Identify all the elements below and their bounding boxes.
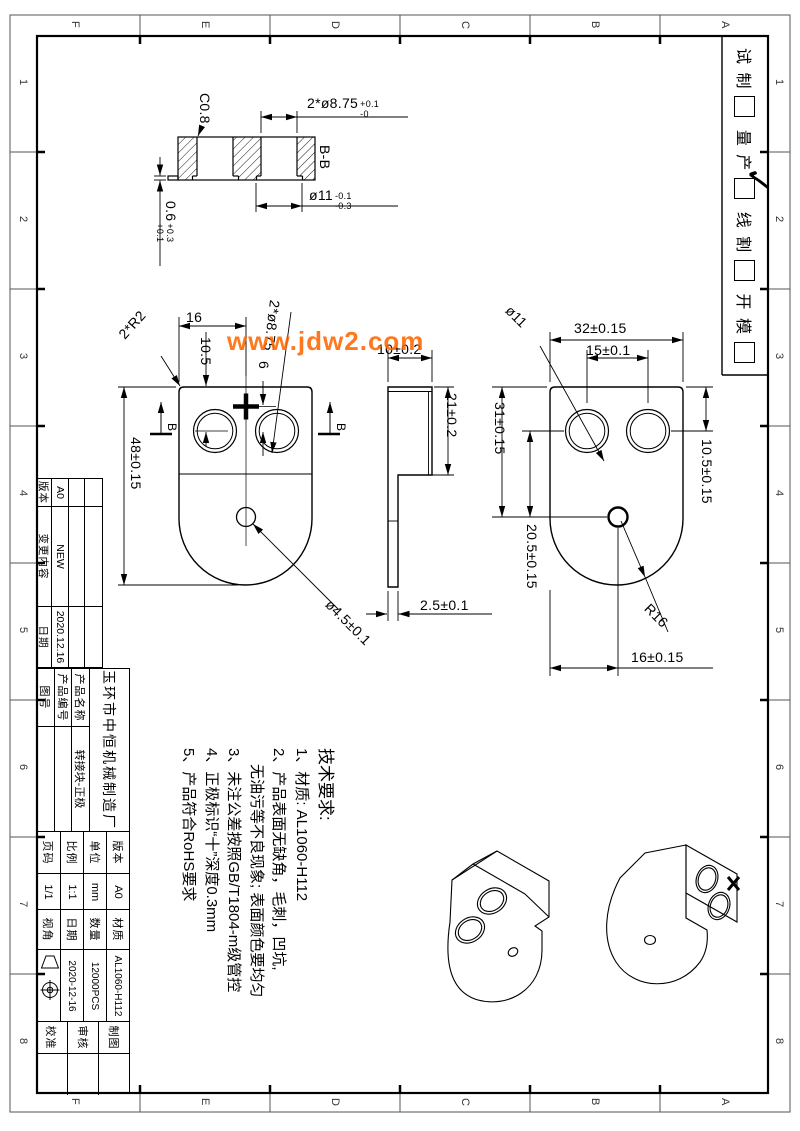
- iso-view-back: [448, 851, 549, 1002]
- zone-letter: F: [69, 1098, 80, 1105]
- dim-hole-pitch: 15±0.1: [586, 343, 631, 357]
- dim-center-offset: 16±0.15: [631, 650, 684, 664]
- page-label: 页码: [36, 832, 60, 874]
- draft-label: 制图: [98, 1022, 129, 1054]
- zone-number: 8: [17, 1038, 28, 1044]
- drawing-sheet: F E D C B A F E D C B A 1 2 3 4 5 6 7 8 …: [0, 0, 800, 1131]
- dim-lip-height: 0.6+0.3+0.1: [155, 201, 178, 242]
- dim-half-width: 16: [186, 310, 202, 324]
- tech-item: 无油污等不良现象; 表面颜色要均匀: [245, 748, 268, 1090]
- zone-number: 7: [773, 901, 784, 907]
- status-trial-label: 试 制: [733, 48, 757, 90]
- status-wire-label: 线 割: [733, 212, 757, 254]
- revision-header-row: 版本 变更内容 日期: [36, 479, 53, 667]
- first-angle-projection-icon: [36, 950, 60, 1022]
- zone-letter: C: [459, 1098, 470, 1106]
- title-block: A0 NEW 2020.12.16 版本 变更内容 日期 玉环市中恒机械制造厂 …: [37, 478, 130, 1093]
- tech-item: 5、产品符合RoHS要求: [177, 748, 200, 1090]
- zone-number: 2: [17, 216, 28, 222]
- front-view: [118, 312, 340, 609]
- dim-edge-to-center: 31±0.15: [493, 402, 507, 455]
- version-label: 版本: [106, 832, 129, 874]
- zone-number: 1: [773, 79, 784, 85]
- zone-number: 6: [17, 764, 28, 770]
- review-label: 审核: [67, 1022, 98, 1054]
- status-mold: 开 模: [733, 294, 757, 363]
- zone-letter: A: [719, 21, 730, 28]
- tech-item: 1、材质: AL1060-H112: [290, 748, 313, 1090]
- tech-title: 技术要求:: [315, 748, 340, 1090]
- zone-number: 3: [773, 353, 784, 359]
- iso-view-front: [607, 845, 739, 984]
- date-value: 2020-12-16: [60, 950, 83, 1022]
- status-mold-label: 开 模: [733, 294, 757, 336]
- revision-date-header: 日期: [36, 607, 52, 667]
- date-label: 日期: [60, 910, 83, 950]
- zone-letter: D: [329, 21, 340, 29]
- qty-value: 12000PCS: [83, 950, 106, 1022]
- zone-number: 1: [17, 79, 28, 85]
- zone-number: 7: [17, 901, 28, 907]
- dim-holes-diameter: 2*ø8.75+0.1-0: [307, 96, 379, 119]
- zone-letter: E: [199, 21, 210, 28]
- status-trial: 试 制: [733, 48, 757, 117]
- side-view: [366, 350, 492, 621]
- review-signature: [67, 1054, 98, 1095]
- technical-requirements: 技术要求: 1、材质: AL1060-H112 2、产品表面无缺角，毛刺，凹坑,…: [168, 748, 340, 1090]
- zone-number: 5: [17, 627, 28, 633]
- trial-checkbox: [735, 96, 756, 117]
- zone-number: 4: [773, 490, 784, 496]
- material-label: 材质: [106, 910, 129, 950]
- zone-letter: F: [69, 21, 80, 28]
- zone-letter: C: [459, 21, 470, 29]
- zone-letter: B: [589, 1098, 600, 1105]
- view-angle-label: 视角: [36, 910, 60, 950]
- mold-checkbox: [735, 342, 756, 363]
- zone-number: 8: [773, 1038, 784, 1044]
- dim-boss-height: 21±0.2: [445, 393, 459, 438]
- tech-item: 4、正极标识“十”深度0.3mm: [200, 748, 223, 1090]
- approve-label: 校准: [36, 1022, 67, 1054]
- wire-checkbox: [735, 260, 756, 281]
- inner-border: [37, 36, 768, 1093]
- checkmark-icon: ✓: [740, 166, 774, 195]
- watermark: www.jdw2.com: [227, 328, 424, 354]
- cut-label-left: B: [166, 423, 178, 431]
- scale-value: 1:1: [60, 874, 83, 910]
- zone-number: 6: [773, 764, 784, 770]
- zone-letter: A: [719, 1098, 730, 1105]
- section-label: B-B: [318, 145, 332, 169]
- revision-row: A0 NEW 2020.12.16: [53, 479, 70, 667]
- product-name: 转接块-正极: [71, 727, 89, 831]
- zone-number: 3: [17, 353, 28, 359]
- revision-change-header: 变更内容: [36, 507, 52, 607]
- production-status-box: 试 制 量 产 线 割 开 模 ✓: [722, 36, 768, 375]
- unit-label: 单位: [83, 832, 106, 874]
- cut-label-right: B: [335, 423, 347, 431]
- zone-number: 5: [773, 627, 784, 633]
- dim-chamfer: C0.8: [198, 93, 212, 124]
- scale-label: 比例: [60, 832, 83, 874]
- dim-width: 32±0.15: [574, 321, 627, 335]
- revision-date: 2020.12.16: [53, 607, 69, 667]
- zone-letter: D: [329, 1098, 340, 1106]
- dim-top-to-hole-right: 10.5±0.15: [700, 439, 714, 504]
- title-block-main: 玉环市中恒机械制造厂 产品名称 转接块-正极 产品编号 图号 版本 A0 单位 …: [37, 668, 130, 1093]
- zone-number: 4: [17, 490, 28, 496]
- dim-plus-offset: 6: [257, 361, 271, 369]
- unit-value: mm: [83, 874, 106, 910]
- revision-version: A0: [53, 479, 69, 507]
- dim-thickness: 2.5±0.1: [420, 598, 469, 612]
- section-view-b-b: [154, 111, 408, 266]
- product-code-value: [54, 727, 71, 831]
- dim-height: 48±0.15: [129, 437, 143, 490]
- drawing-no-label: 图号: [36, 669, 54, 727]
- draft-signature: [98, 1054, 129, 1095]
- page-value: 1/1: [36, 874, 60, 910]
- version-value: A0: [106, 874, 129, 910]
- company-name: 玉环市中恒机械制造厂: [89, 669, 129, 831]
- dim-top-to-hole: 10.5: [199, 337, 213, 365]
- dim-bore-diameter: ø11-0.1-0.3: [309, 188, 352, 211]
- tech-item: 2、产品表面无缺角，毛刺，凹坑,: [267, 748, 290, 1090]
- zone-letter: E: [199, 1098, 210, 1105]
- material-value: AL1060-H112: [106, 950, 129, 1022]
- qty-label: 数量: [83, 910, 106, 950]
- product-code-label: 产品编号: [54, 669, 71, 727]
- drawing-no-value: [36, 727, 54, 831]
- tech-item: 3、未注公差按照GB/T1804-m级管控: [222, 748, 245, 1090]
- approve-signature: [36, 1054, 67, 1095]
- dim-hole-to-center: 20.5±0.15: [525, 524, 539, 589]
- revision-table: A0 NEW 2020.12.16 版本 变更内容 日期: [37, 478, 103, 668]
- revision-version-header: 版本: [36, 479, 52, 507]
- product-name-label: 产品名称: [71, 669, 89, 727]
- right-view: [492, 332, 713, 676]
- zone-number: 2: [773, 216, 784, 222]
- revision-change: NEW: [53, 507, 69, 607]
- zone-letter: B: [589, 21, 600, 28]
- status-wire-cut: 线 割: [733, 212, 757, 281]
